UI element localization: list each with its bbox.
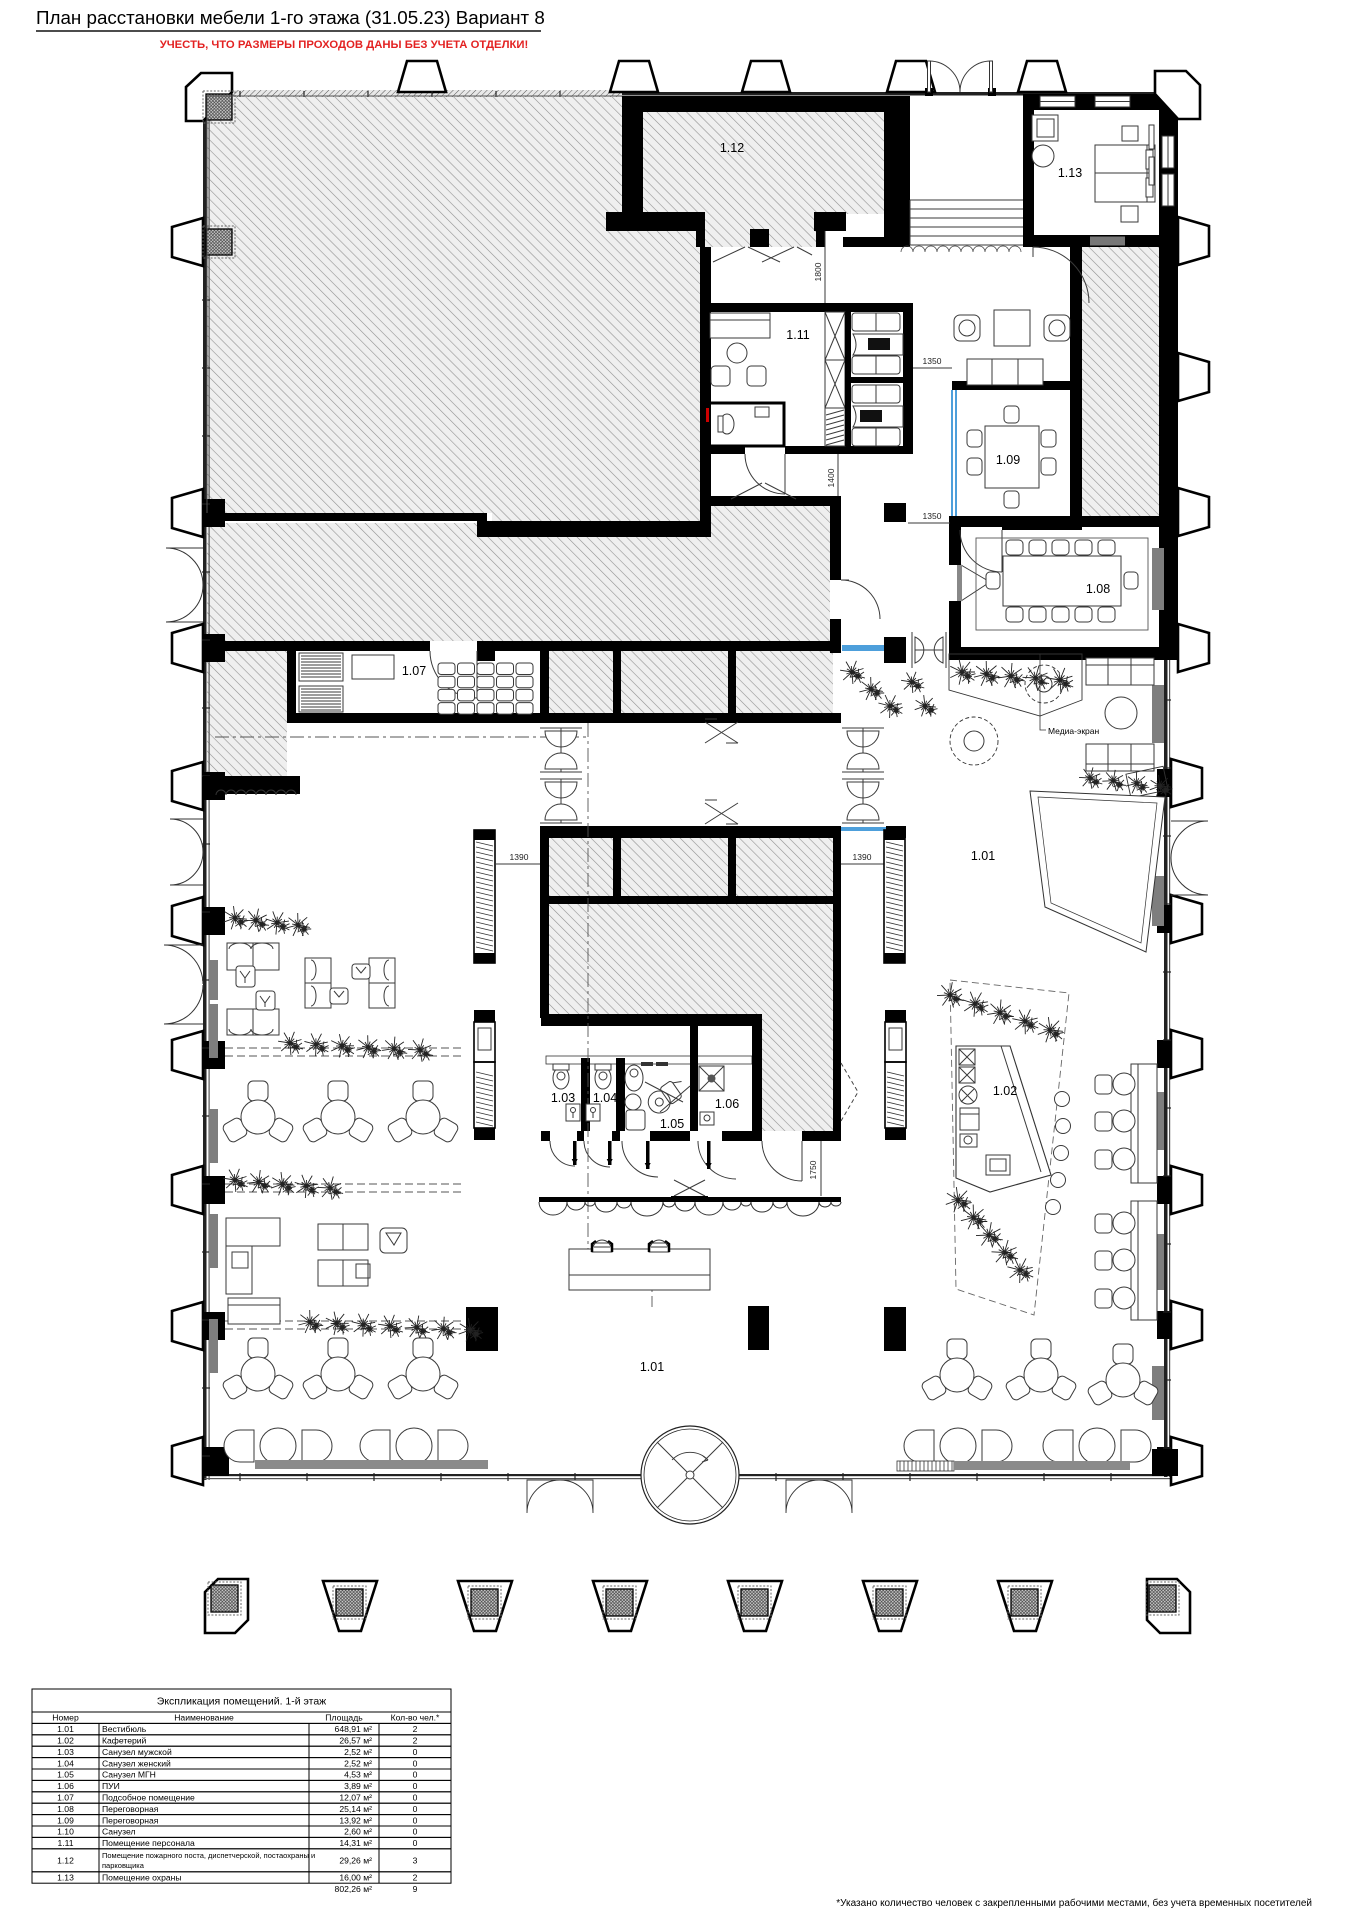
svg-text:648,91 м²: 648,91 м² — [335, 1724, 373, 1734]
svg-text:*Указано количество человек с: *Указано количество человек с закрепленн… — [836, 1897, 1312, 1909]
svg-text:2: 2 — [413, 1873, 418, 1883]
svg-text:1400: 1400 — [826, 468, 836, 487]
svg-text:1350: 1350 — [923, 511, 942, 521]
svg-text:1.01: 1.01 — [57, 1724, 74, 1734]
svg-text:1.03: 1.03 — [57, 1747, 74, 1757]
svg-text:2,52 м²: 2,52 м² — [344, 1747, 372, 1757]
svg-text:План расстановки мебели 1-го э: План расстановки мебели 1-го этажа (31.0… — [36, 7, 545, 28]
svg-text:12,07 м²: 12,07 м² — [339, 1793, 372, 1803]
svg-text:1.02: 1.02 — [57, 1736, 74, 1746]
svg-text:1.08: 1.08 — [57, 1804, 74, 1814]
svg-text:1.08: 1.08 — [1086, 582, 1110, 596]
svg-text:1350: 1350 — [923, 356, 942, 366]
svg-text:Площадь: Площадь — [325, 1713, 363, 1723]
svg-text:2,52 м²: 2,52 м² — [344, 1758, 372, 1768]
svg-text:1.07: 1.07 — [57, 1793, 74, 1803]
svg-text:1.12: 1.12 — [57, 1855, 74, 1865]
svg-text:1.06: 1.06 — [57, 1781, 74, 1791]
svg-text:2: 2 — [413, 1724, 418, 1734]
svg-text:3,89 м²: 3,89 м² — [344, 1781, 372, 1791]
svg-text:Кол-во чел.*: Кол-во чел.* — [391, 1713, 440, 1723]
svg-text:26,57 м²: 26,57 м² — [339, 1736, 372, 1746]
svg-text:0: 0 — [413, 1770, 418, 1780]
svg-text:1.01: 1.01 — [640, 1360, 664, 1374]
svg-text:1.11: 1.11 — [57, 1838, 73, 1848]
svg-text:13,92 м²: 13,92 м² — [339, 1815, 372, 1825]
svg-text:1.13: 1.13 — [1058, 166, 1082, 180]
svg-text:Экспликация помещений. 1-й эта: Экспликация помещений. 1-й этаж — [157, 1696, 326, 1708]
svg-text:1.02: 1.02 — [993, 1084, 1017, 1098]
svg-text:0: 0 — [413, 1747, 418, 1757]
svg-text:1.09: 1.09 — [996, 453, 1020, 467]
svg-text:25,14 м²: 25,14 м² — [339, 1804, 372, 1814]
svg-text:1.06: 1.06 — [715, 1097, 739, 1111]
svg-text:УЧЕСТЬ, ЧТО РАЗМЕРЫ ПРОХОДОВ Д: УЧЕСТЬ, ЧТО РАЗМЕРЫ ПРОХОДОВ ДАНЫ БЕЗ УЧ… — [160, 39, 529, 51]
svg-text:Санузел женский: Санузел женский — [102, 1758, 171, 1768]
svg-text:1750: 1750 — [808, 1160, 818, 1179]
svg-text:0: 0 — [413, 1838, 418, 1848]
svg-text:1.07: 1.07 — [402, 664, 426, 678]
svg-text:парковщика: парковщика — [102, 1861, 145, 1870]
svg-text:Кафетерий: Кафетерий — [102, 1736, 147, 1746]
svg-text:0: 0 — [413, 1793, 418, 1803]
svg-text:1.12: 1.12 — [720, 141, 744, 155]
svg-text:0: 0 — [413, 1804, 418, 1814]
svg-text:1.03: 1.03 — [551, 1091, 575, 1105]
svg-text:1.13: 1.13 — [57, 1873, 74, 1883]
svg-text:Помещение персонала: Помещение персонала — [102, 1838, 195, 1848]
svg-text:0: 0 — [413, 1758, 418, 1768]
svg-text:9: 9 — [413, 1884, 418, 1894]
svg-text:16,00 м²: 16,00 м² — [339, 1873, 372, 1883]
svg-text:1.05: 1.05 — [660, 1117, 684, 1131]
svg-text:1.01: 1.01 — [971, 849, 995, 863]
svg-text:0: 0 — [413, 1827, 418, 1837]
svg-text:1.05: 1.05 — [57, 1770, 74, 1780]
svg-text:0: 0 — [413, 1781, 418, 1791]
svg-text:Помещение пожарного поста, дис: Помещение пожарного поста, диспетчерской… — [102, 1851, 315, 1860]
svg-text:29,26 м²: 29,26 м² — [339, 1855, 372, 1865]
svg-text:1.10: 1.10 — [57, 1827, 74, 1837]
svg-text:1390: 1390 — [510, 852, 529, 862]
svg-text:Помещение охраны: Помещение охраны — [102, 1873, 182, 1883]
svg-text:Переговорная: Переговорная — [102, 1804, 159, 1814]
svg-text:1.04: 1.04 — [57, 1758, 74, 1768]
svg-text:2: 2 — [413, 1736, 418, 1746]
svg-text:Номер: Номер — [52, 1713, 79, 1723]
svg-text:1.09: 1.09 — [57, 1815, 74, 1825]
svg-text:1.11: 1.11 — [786, 328, 809, 342]
svg-text:14,31 м²: 14,31 м² — [339, 1838, 372, 1848]
svg-text:1800: 1800 — [813, 262, 823, 281]
svg-text:802,26 м²: 802,26 м² — [335, 1884, 373, 1894]
svg-text:4,53 м²: 4,53 м² — [344, 1770, 372, 1780]
svg-text:Санузел: Санузел — [102, 1827, 135, 1837]
svg-text:Подсобное помещение: Подсобное помещение — [102, 1793, 195, 1803]
svg-text:1390: 1390 — [853, 852, 872, 862]
svg-text:Вестибюль: Вестибюль — [102, 1724, 147, 1734]
svg-text:ПУИ: ПУИ — [102, 1781, 120, 1791]
svg-text:3: 3 — [413, 1855, 418, 1865]
svg-text:Санузел МГН: Санузел МГН — [102, 1770, 156, 1780]
svg-text:Наименование: Наименование — [174, 1713, 234, 1723]
svg-text:2,60 м²: 2,60 м² — [344, 1827, 372, 1837]
svg-text:Медиа-экран: Медиа-экран — [1048, 726, 1099, 736]
svg-text:Санузел мужской: Санузел мужской — [102, 1747, 172, 1757]
svg-text:Переговорная: Переговорная — [102, 1815, 159, 1825]
svg-text:0: 0 — [413, 1815, 418, 1825]
svg-text:1.04: 1.04 — [593, 1091, 617, 1105]
